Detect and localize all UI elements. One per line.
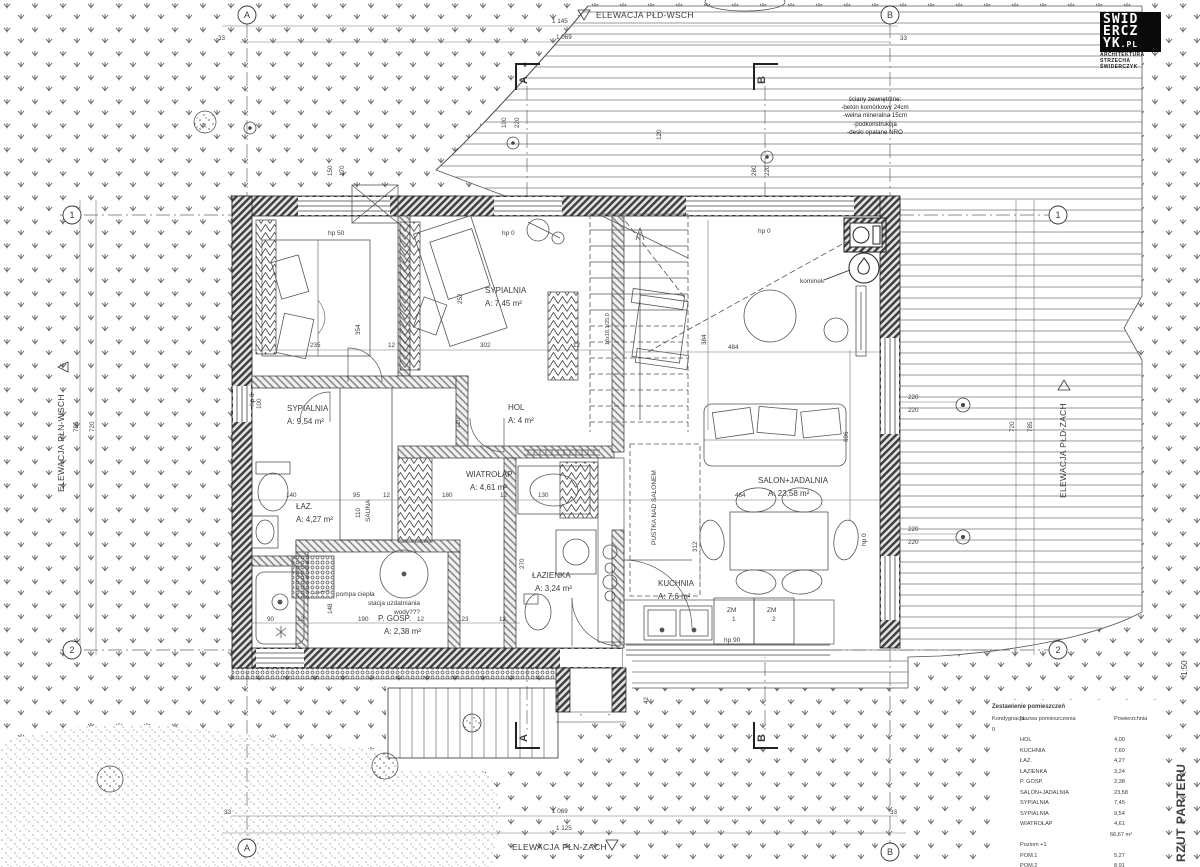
svg-text:A: 4,27 m²: A: 4,27 m² xyxy=(296,515,333,524)
room-sypialnia-1: SYPIALNIA xyxy=(287,404,329,413)
table-row: SYPIALNIA7,45 xyxy=(992,798,1160,809)
room-laz: ŁAZ. xyxy=(296,502,313,511)
table-row: ŁAZIENKA3,24 xyxy=(992,767,1160,778)
room-wiatrolap: WIATROŁAP xyxy=(466,470,513,479)
svg-text:130: 130 xyxy=(538,492,549,499)
svg-text:A: 23,58 m²: A: 23,58 m² xyxy=(768,489,810,498)
room-hol: HOL xyxy=(508,403,525,412)
svg-text:190: 190 xyxy=(358,616,369,623)
svg-text:120: 120 xyxy=(455,417,462,428)
table-header: Kondygnacja Nazwa pomieszczenia Powierzc… xyxy=(992,715,1160,723)
elev-right: ELEWACJA PŁD-ZACH xyxy=(1058,403,1068,498)
svg-text:252: 252 xyxy=(457,293,464,304)
svg-text:12: 12 xyxy=(383,492,391,499)
svg-text:148: 148 xyxy=(327,603,334,614)
svg-text:12: 12 xyxy=(297,616,305,623)
svg-text:42: 42 xyxy=(643,696,650,704)
svg-text:312: 312 xyxy=(692,541,699,552)
elev-top: ELEWACJA PŁD-WSCH xyxy=(596,10,694,20)
svg-text:720: 720 xyxy=(89,421,96,432)
svg-text:170: 170 xyxy=(339,165,346,176)
logo-block: ŚWID ERCZ YK.PL xyxy=(1100,12,1161,52)
table-title: Zestawienie pomieszczeń xyxy=(992,702,1160,713)
svg-text:2: 2 xyxy=(69,645,74,655)
wall-notes: ściany zewnętrzne: -beton komórkowy 24cm… xyxy=(790,96,960,137)
notes-title: ściany zewnętrzne: xyxy=(790,96,960,104)
svg-text:235: 235 xyxy=(310,342,321,349)
table-row: KUCHNIA7,60 xyxy=(992,746,1160,757)
svg-text:A: 7,6 m²: A: 7,6 m² xyxy=(658,592,691,601)
svg-text:140: 140 xyxy=(286,492,297,499)
svg-text:12: 12 xyxy=(500,492,508,499)
svg-text:A: A xyxy=(244,10,250,20)
svg-text:1: 1 xyxy=(1055,210,1060,220)
svg-text:ZM: ZM xyxy=(727,607,736,614)
svg-text:785: 785 xyxy=(73,421,80,432)
svg-text:785: 785 xyxy=(1027,421,1034,432)
table-kond-row: 0 xyxy=(992,725,1160,736)
svg-text:1 069: 1 069 xyxy=(556,34,572,41)
svg-text:A: A xyxy=(518,734,530,742)
svg-text:220: 220 xyxy=(514,117,521,128)
svg-text:B: B xyxy=(756,734,768,742)
svg-text:12: 12 xyxy=(499,616,507,623)
svg-text:384: 384 xyxy=(701,334,708,345)
svg-text:33: 33 xyxy=(890,809,898,816)
svg-text:A: 7,45 m²: A: 7,45 m² xyxy=(485,299,522,308)
svg-text:464: 464 xyxy=(735,492,746,499)
svg-text:150: 150 xyxy=(327,165,334,176)
table-row: SALON+JADALNIA23,58 xyxy=(992,788,1160,799)
kominek-label: kominek xyxy=(800,278,825,285)
svg-text:1: 1 xyxy=(69,210,74,220)
svg-text:33: 33 xyxy=(218,35,226,42)
svg-text:33: 33 xyxy=(900,35,908,42)
svg-text:2: 2 xyxy=(772,616,776,623)
svg-text:180: 180 xyxy=(442,492,453,499)
table-row: SYPIALNIA9,54 xyxy=(992,809,1160,820)
table-row: POM.28,91 xyxy=(992,861,1160,867)
svg-text:A: 4,61 m²: A: 4,61 m² xyxy=(470,483,507,492)
table-row: POM.15,27 xyxy=(992,851,1160,862)
svg-text:ZM: ZM xyxy=(767,607,776,614)
svg-text:B: B xyxy=(756,76,768,84)
svg-text:A: A xyxy=(244,843,250,853)
table-subtotal-0: 66,67 m² xyxy=(992,830,1160,841)
svg-text:270: 270 xyxy=(519,558,526,569)
svg-text:1 069: 1 069 xyxy=(552,808,568,815)
svg-text:1 145: 1 145 xyxy=(552,18,568,25)
logo-line2: STRZECHA ŚWIDERCZYK xyxy=(1100,58,1164,70)
svg-text:1: 1 xyxy=(732,616,736,623)
svg-text:A: 4 m²: A: 4 m² xyxy=(508,416,534,425)
svg-text:100: 100 xyxy=(501,117,508,128)
svg-text:220: 220 xyxy=(908,539,919,546)
svg-text:wody???: wody??? xyxy=(393,609,420,616)
room-salon: SALON+JADALNIA xyxy=(758,476,829,485)
room-sypialnia-2: SYPIALNIA xyxy=(485,286,527,295)
table-row: ŁAZ.4,27 xyxy=(992,756,1160,767)
svg-text:2: 2 xyxy=(1055,645,1060,655)
svg-text:220: 220 xyxy=(908,394,919,401)
svg-text:hp 0: hp 0 xyxy=(758,228,771,235)
elev-left: ELEWACJA PŁN-WSCH xyxy=(56,394,66,492)
svg-text:123: 123 xyxy=(458,616,469,623)
svg-text:120: 120 xyxy=(656,129,663,140)
svg-text:A: 9,54 m²: A: 9,54 m² xyxy=(287,417,324,426)
svg-text:696: 696 xyxy=(843,431,850,442)
table-row: WIATROŁAP4,61 xyxy=(992,819,1160,830)
svg-text:A: 2,38 m²: A: 2,38 m² xyxy=(384,627,421,636)
svg-text:hp 0: hp 0 xyxy=(861,533,868,546)
svg-text:12: 12 xyxy=(388,342,396,349)
table-row: HOL4,00 xyxy=(992,735,1160,746)
svg-text:484: 484 xyxy=(728,344,739,351)
svg-text:90: 90 xyxy=(267,616,275,623)
svg-text:95: 95 xyxy=(353,492,361,499)
svg-text:110: 110 xyxy=(355,507,362,518)
room-schedule: Zestawienie pomieszczeń Kondygnacja Nazw… xyxy=(990,700,1162,867)
svg-text:hp 0: hp 0 xyxy=(502,230,515,237)
svg-text:hp 50: hp 50 xyxy=(328,230,345,237)
svg-text:220: 220 xyxy=(908,407,919,414)
room-sauna: SAUNA xyxy=(365,499,372,522)
svg-text:1 125: 1 125 xyxy=(556,825,572,832)
room-kuchnia: KUCHNIA xyxy=(658,579,695,588)
svg-text:220: 220 xyxy=(764,165,771,176)
svg-text:100: 100 xyxy=(256,398,263,409)
svg-text:12: 12 xyxy=(573,342,581,349)
sheet-title: RZUT PARTERU xyxy=(1174,764,1188,862)
svg-text:B: B xyxy=(887,847,893,857)
elev-bottom: ELEWACJA PŁN-ZACH xyxy=(512,842,607,852)
table-level-row: Poziom +1 xyxy=(992,840,1160,851)
svg-text:hp 0: hp 0 xyxy=(249,393,256,406)
architect-logo: ŚWID ERCZ YK.PL ARCHITEKTURA STRZECHA ŚW… xyxy=(1100,12,1164,70)
pompa-label: pompa ciepła xyxy=(336,591,375,598)
svg-text:280: 280 xyxy=(751,165,758,176)
stacja-label: stacja uzdatniania xyxy=(368,600,420,607)
stairs-spec: 16x18,1/25,0 xyxy=(605,313,611,345)
svg-text:354: 354 xyxy=(355,324,362,335)
svg-text:A: A xyxy=(518,76,530,84)
room-lazienka: ŁAZIENKA xyxy=(532,571,571,580)
svg-text:220: 220 xyxy=(908,526,919,533)
floor-plan-sheet: { "meta": {"sheet_title": "RZUT PARTERU"… xyxy=(0,0,1200,867)
svg-text:720: 720 xyxy=(1009,421,1016,432)
sheet-scale: 1:50 xyxy=(1180,660,1189,676)
pustka-label: PUSTKA NAD SALONEM xyxy=(651,470,658,545)
svg-text:A: 3,24 m²: A: 3,24 m² xyxy=(535,584,572,593)
svg-text:302: 302 xyxy=(480,342,491,349)
svg-text:33: 33 xyxy=(224,809,232,816)
table-row: P. GOSP.2,38 xyxy=(992,777,1160,788)
svg-text:hp 90: hp 90 xyxy=(724,637,741,644)
svg-text:12: 12 xyxy=(417,616,425,623)
svg-text:B: B xyxy=(887,10,893,20)
